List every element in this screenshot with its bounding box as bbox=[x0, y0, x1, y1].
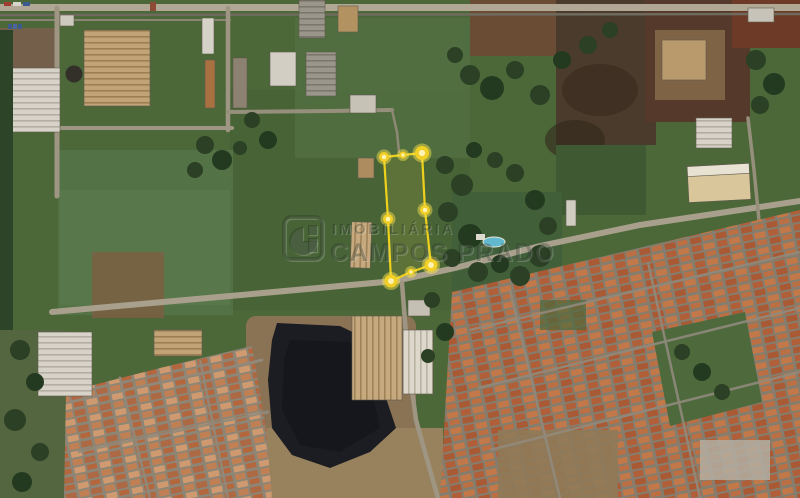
plot-vertex-dot bbox=[382, 155, 387, 160]
plot-vertex-dot bbox=[401, 153, 404, 156]
watermark-line2: CAMPOS PRADO bbox=[330, 239, 555, 267]
satellite-map-svg: IMOBILIÁRIA IMOBILIÁRIA CAMPOS PRADO CAM… bbox=[0, 0, 800, 498]
plot-vertex-dot bbox=[423, 208, 428, 213]
watermark-line1: IMOBILIÁRIA bbox=[332, 221, 455, 238]
plot-vertex-dot bbox=[388, 278, 394, 284]
plot-vertex-dot bbox=[419, 150, 425, 156]
satellite-map-image[interactable]: IMOBILIÁRIA IMOBILIÁRIA CAMPOS PRADO CAM… bbox=[0, 0, 800, 498]
plot-vertex-dot bbox=[386, 217, 391, 222]
plot-vertex-dot bbox=[409, 270, 412, 273]
